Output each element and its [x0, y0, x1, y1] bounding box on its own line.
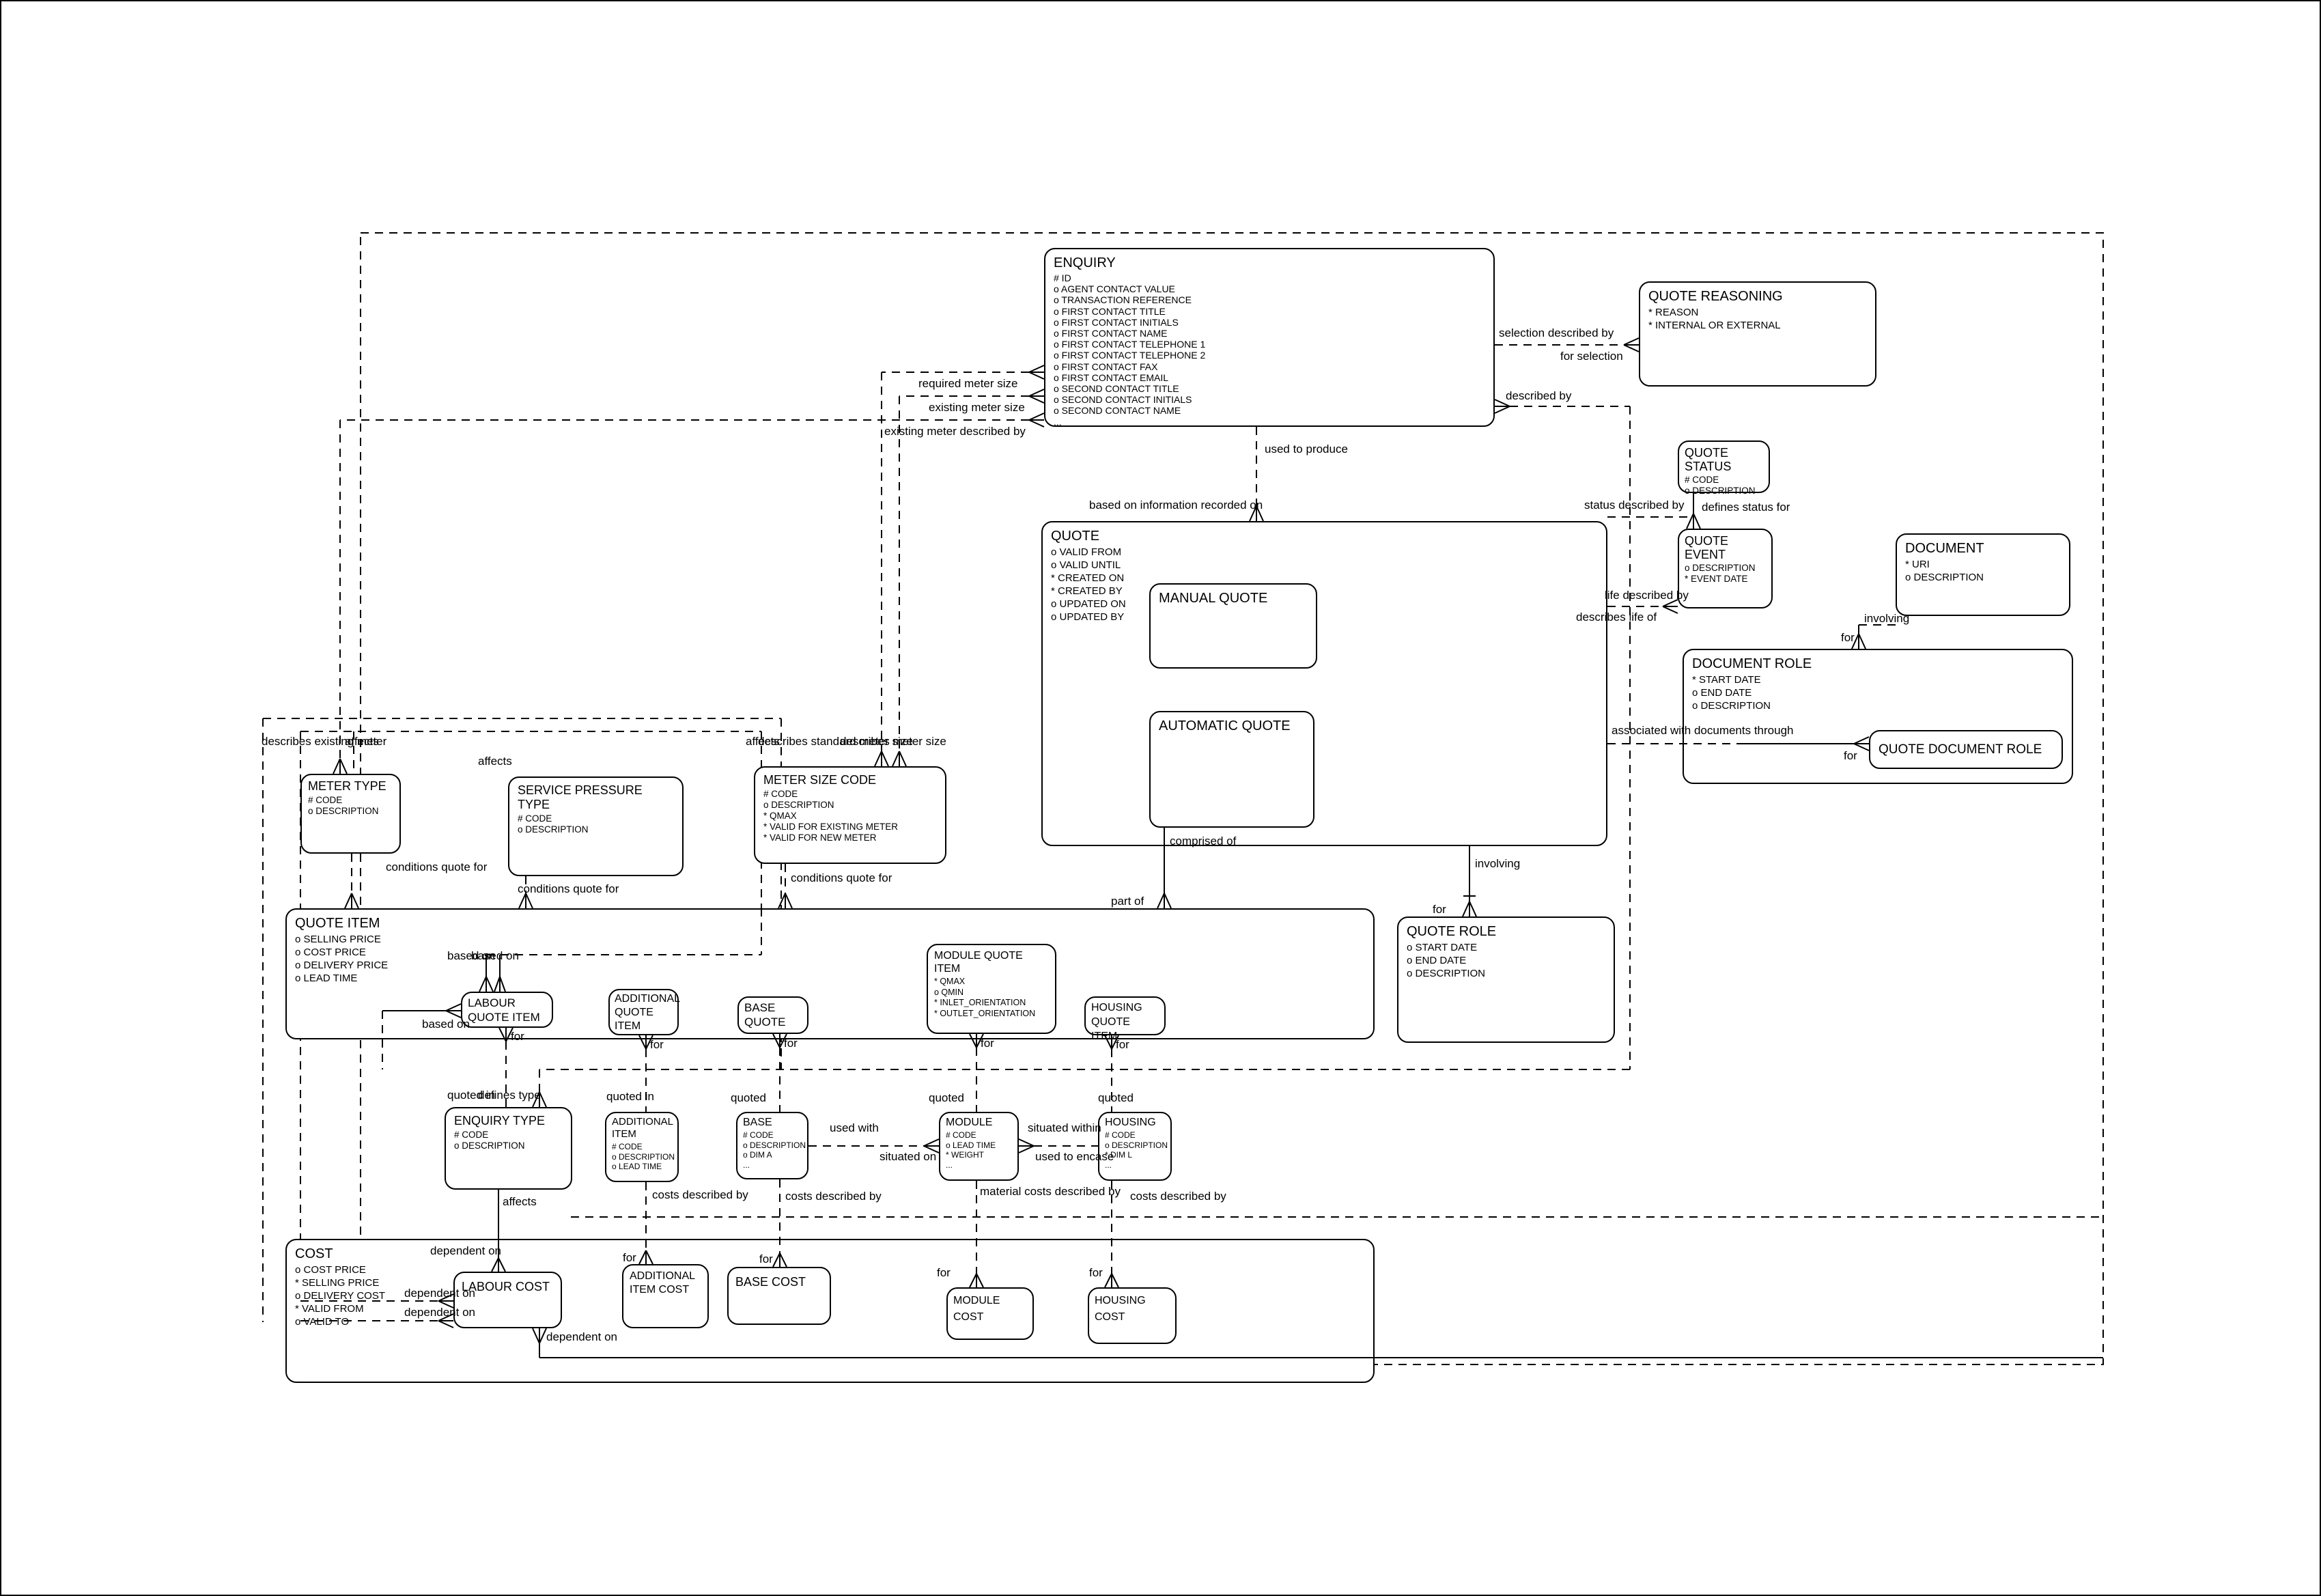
entity-document-title: DOCUMENT — [1905, 540, 2061, 557]
rel-label-required-meter-size: required meter size — [918, 377, 1018, 390]
attribute-row: * URI — [1905, 558, 2061, 571]
entity-quote-role: QUOTE ROLE o START DATE o END DATE o DES… — [1397, 916, 1615, 1043]
entity-base-title: BASE — [743, 1116, 802, 1129]
attribute-row: # ID — [1054, 272, 1485, 283]
attribute-row: o LEAD TIME — [612, 1162, 672, 1172]
attribute-row: * EVENT DATE — [1685, 574, 1766, 585]
attribute-row: * QMAX — [763, 811, 937, 822]
rel-label-dependent-on-top: dependent on — [430, 1244, 501, 1257]
rel-label-involving-quote-role: involving — [1475, 857, 1520, 870]
rel-label-quoted-housing: quoted — [1098, 1091, 1134, 1104]
attribute-row: o SECOND CONTACT NAME — [1054, 405, 1485, 416]
rel-label-for-housing-cost: for — [1089, 1266, 1103, 1279]
rel-label-selection-described-by: selection described by — [1499, 326, 1614, 339]
entity-quote-event-title: QUOTE EVENT — [1685, 534, 1766, 561]
entity-quote-document-role: QUOTE DOCUMENT ROLE — [1869, 730, 2063, 769]
attribute-row: # CODE — [518, 813, 674, 824]
rel-label-for-additional-cost: for — [623, 1251, 636, 1264]
rel-label-costs-described-by-additional: costs described by — [652, 1188, 748, 1201]
entity-service-pressure-type-attrs: # CODE o DESCRIPTION — [518, 813, 674, 835]
entity-labour-cost-title: LABOUR COST — [462, 1278, 554, 1295]
rel-label-costs-described-by-base: costs described by — [785, 1190, 882, 1203]
rel-label-quoted-in-additional: quoted in — [606, 1090, 654, 1103]
entity-additional-quote-item-title: ADDITIONAL QUOTE ITEM — [615, 992, 673, 1033]
entity-housing-title: HOUSING — [1105, 1116, 1165, 1129]
rel-label-quoted-module: quoted — [929, 1091, 964, 1104]
attribute-row: o DESCRIPTION — [1685, 563, 1766, 574]
rel-label-conditions-quote-for-meter-type: conditions quote for — [386, 860, 487, 873]
attribute-row: o DESCRIPTION — [1105, 1140, 1165, 1151]
entity-additional-item-attrs: # CODE o DESCRIPTION o LEAD TIME — [612, 1142, 672, 1172]
entity-manual-quote: MANUAL QUOTE — [1149, 583, 1317, 669]
rel-label-part-of: part of — [1111, 895, 1144, 908]
rel-label-involving-document: involving — [1864, 612, 1909, 625]
attribute-row: o FIRST CONTACT NAME — [1054, 328, 1485, 339]
attribute-row: # CODE — [454, 1130, 563, 1140]
entity-quote-reasoning: QUOTE REASONING * REASON * INTERNAL OR E… — [1639, 281, 1876, 387]
attribute-row: o END DATE — [1407, 954, 1605, 967]
entity-labour-quote-item: LABOUR QUOTE ITEM — [461, 992, 553, 1028]
attribute-row: o FIRST CONTACT TELEPHONE 1 — [1054, 339, 1485, 350]
rel-label-for-additional-quote-item: for — [650, 1038, 664, 1051]
entity-service-pressure-type: SERVICE PRESSURE TYPE # CODE o DESCRIPTI… — [508, 776, 684, 876]
rel-label-for-module-quote-item: for — [981, 1037, 994, 1050]
attribute-row: * VALID FOR EXISTING METER — [763, 822, 937, 832]
entity-module-attrs: # CODE o LEAD TIME * WEIGHT ... — [946, 1130, 1012, 1170]
entity-enquiry-attrs: # ID o AGENT CONTACT VALUE o TRANSACTION… — [1054, 272, 1485, 428]
attribute-row: o SECOND CONTACT INITIALS — [1054, 394, 1485, 405]
attribute-row: # CODE — [763, 789, 937, 800]
entity-labour-cost: LABOUR COST — [453, 1272, 562, 1328]
entity-quote-reasoning-attrs: * REASON * INTERNAL OR EXTERNAL — [1648, 306, 1867, 332]
attribute-row: o START DATE — [1407, 941, 1605, 954]
attribute-row: * REASON — [1648, 306, 1867, 319]
entity-base: BASE # CODE o DESCRIPTION o DIM A ... — [736, 1112, 808, 1179]
entity-base-cost-title: BASE COST — [735, 1274, 823, 1290]
rel-label-based-on-left: based on — [422, 1018, 470, 1031]
entity-enquiry-title: ENQUIRY — [1054, 255, 1485, 271]
entity-base-quote: BASE QUOTE — [737, 996, 808, 1034]
entity-module-cost-title: MODULE COST — [953, 1293, 1027, 1326]
entity-additional-quote-item: ADDITIONAL QUOTE ITEM — [608, 989, 679, 1035]
rel-label-material-costs-described-by: material costs described by — [980, 1185, 1121, 1198]
entity-meter-type-title: METER TYPE — [308, 779, 393, 794]
entity-additional-item-cost: ADDITIONAL ITEM COST — [622, 1264, 709, 1328]
rel-label-describes-meter-size: describes meter size — [840, 735, 946, 748]
entity-base-cost: BASE COST — [727, 1267, 831, 1325]
entity-module-quote-item-title: MODULE QUOTE ITEM — [934, 949, 1049, 975]
rel-label-existing-meter-size: existing meter size — [929, 401, 1025, 414]
attribute-row: o LEAD TIME — [946, 1140, 1012, 1151]
attribute-row: # CODE — [946, 1130, 1012, 1140]
attribute-row: o AGENT CONTACT VALUE — [1054, 283, 1485, 294]
entity-enquiry-type-title: ENQUIRY TYPE — [454, 1114, 563, 1128]
entity-module-quote-item-attrs: * QMAX o QMIN * INLET_ORIENTATION * OUTL… — [934, 977, 1049, 1019]
rel-label-status-described-by: status described by — [1584, 499, 1684, 512]
entity-additional-item-title: ADDITIONAL ITEM — [612, 1116, 672, 1140]
entity-quote-status: QUOTE STATUS # CODE o DESCRIPTION — [1678, 440, 1770, 493]
attribute-row: ... — [1054, 417, 1485, 428]
entity-enquiry-type: ENQUIRY TYPE # CODE o DESCRIPTION — [445, 1107, 572, 1190]
attribute-row: * INLET_ORIENTATION — [934, 998, 1049, 1009]
attribute-row: o FIRST CONTACT TITLE — [1054, 306, 1485, 317]
attribute-row: o DIM A — [743, 1150, 802, 1160]
rel-label-for-selection: for selection — [1560, 350, 1623, 363]
attribute-row: o TRANSACTION REFERENCE — [1054, 294, 1485, 305]
rel-label-costs-described-by-housing: costs described by — [1130, 1190, 1226, 1203]
entity-module-cost: MODULE COST — [946, 1287, 1034, 1340]
attribute-row: # CODE — [743, 1130, 802, 1140]
rel-label-dependent-on-valid: dependent on — [404, 1306, 475, 1319]
entity-quote-status-title: QUOTE STATUS — [1685, 446, 1763, 473]
rel-label-described-by: described by — [1506, 389, 1571, 402]
entity-document-attrs: * URI o DESCRIPTION — [1905, 558, 2061, 584]
attribute-row: * INTERNAL OR EXTERNAL — [1648, 319, 1867, 332]
attribute-row: o FIRST CONTACT FAX — [1054, 361, 1485, 372]
attribute-row: o DESCRIPTION — [612, 1152, 672, 1162]
entity-meter-size-code-title: METER SIZE CODE — [763, 773, 937, 787]
attribute-row: o FIRST CONTACT EMAIL — [1054, 372, 1485, 383]
entity-service-pressure-type-title: SERVICE PRESSURE TYPE — [518, 783, 674, 812]
entity-labour-quote-item-title: LABOUR QUOTE ITEM — [468, 996, 546, 1024]
attribute-row: * VALID FOR NEW METER — [763, 832, 937, 843]
attribute-row: o FIRST CONTACT TELEPHONE 2 — [1054, 350, 1485, 361]
rel-label-for-labour-quote-item: for — [511, 1030, 524, 1043]
attribute-row: o DESCRIPTION — [1905, 571, 2061, 584]
rel-label-affects-meter-type: affects — [345, 735, 379, 748]
rel-label-based-on-2: based on — [471, 949, 519, 962]
rel-label-conditions-quote-for-service-pressure: conditions quote for — [518, 882, 619, 895]
attribute-row: * WEIGHT — [946, 1150, 1012, 1160]
entity-quote-event: QUOTE EVENT o DESCRIPTION * EVENT DATE — [1678, 529, 1773, 608]
rel-label-for-module-cost: for — [937, 1266, 951, 1279]
rel-label-used-to-encase: used to encase — [1035, 1150, 1114, 1163]
rel-label-situated-on: situated on — [880, 1150, 936, 1163]
attribute-row: # CODE — [1105, 1130, 1165, 1140]
rel-label-used-to-produce: used to produce — [1265, 443, 1348, 456]
entity-meter-size-code: METER SIZE CODE # CODE o DESCRIPTION * Q… — [754, 766, 946, 864]
entity-meter-type-attrs: # CODE o DESCRIPTION — [308, 795, 393, 817]
entity-module-quote-item: MODULE QUOTE ITEM * QMAX o QMIN * INLET_… — [927, 944, 1056, 1034]
rel-label-affects-service-pressure: affects — [478, 755, 512, 768]
entity-additional-item: ADDITIONAL ITEM # CODE o DESCRIPTION o L… — [605, 1112, 679, 1182]
rel-label-situated-within: situated within — [1028, 1121, 1101, 1134]
entity-quote-event-attrs: o DESCRIPTION * EVENT DATE — [1685, 563, 1766, 585]
rel-label-for-document: for — [1841, 631, 1855, 644]
rel-label-dependent-on-selling: dependent on — [404, 1287, 475, 1300]
rel-label-conditions-quote-for-meter-size: conditions quote for — [791, 871, 892, 884]
attribute-row: # CODE — [612, 1142, 672, 1152]
rel-label-for-quote-role: for — [1433, 903, 1446, 916]
rel-label-associated-with-documents-through: associated with documents through — [1612, 724, 1794, 737]
attribute-row: o DESCRIPTION — [763, 800, 937, 811]
rel-label-quoted-base: quoted — [731, 1091, 766, 1104]
rel-label-for-base-quote: for — [784, 1037, 798, 1050]
attribute-row: o DESCRIPTION — [743, 1140, 802, 1151]
attribute-row: ... — [946, 1160, 1012, 1171]
attribute-row: o DESCRIPTION — [1685, 486, 1763, 496]
rel-label-based-on-information-recorded-on: based on information recorded on — [1089, 499, 1263, 512]
entity-document: DOCUMENT * URI o DESCRIPTION — [1896, 533, 2070, 616]
entity-automatic-quote-title: AUTOMATIC QUOTE — [1159, 718, 1305, 734]
rel-label-defines-type: defines type — [478, 1089, 541, 1102]
rel-label-affects-enquiry-type: affects — [503, 1195, 537, 1208]
attribute-row: o DESCRIPTION — [308, 806, 393, 817]
entity-housing-cost-title: HOUSING COST — [1095, 1293, 1170, 1326]
entity-housing-quote-item: HOUSING QUOTE ITEM — [1084, 996, 1166, 1035]
entity-quote-role-attrs: o START DATE o END DATE o DESCRIPTION — [1407, 941, 1605, 980]
entity-meter-type: METER TYPE # CODE o DESCRIPTION — [300, 774, 401, 854]
attribute-row: o DESCRIPTION — [1407, 967, 1605, 980]
rel-label-comprised-of: comprised of — [1170, 835, 1236, 848]
entity-housing-cost: HOUSING COST — [1088, 1287, 1177, 1344]
rel-label-describes-life-of: describes life of — [1576, 611, 1657, 624]
entity-quote-document-role-title: QUOTE DOCUMENT ROLE — [1879, 742, 2042, 758]
attribute-row: o DESCRIPTION — [518, 824, 674, 835]
rel-label-for-base-cost: for — [759, 1252, 773, 1265]
attribute-row: o QMIN — [934, 988, 1049, 998]
rel-label-existing-meter-described-by: existing meter described by — [884, 425, 1026, 438]
attribute-row: # CODE — [1685, 475, 1763, 486]
entity-base-quote-title: BASE QUOTE — [744, 1000, 802, 1029]
attribute-row: * OUTLET_ORIENTATION — [934, 1009, 1049, 1020]
rel-label-for-quote-document-role: for — [1844, 749, 1857, 762]
entity-module-title: MODULE — [946, 1116, 1012, 1129]
entity-quote-role-title: QUOTE ROLE — [1407, 923, 1605, 940]
entity-meter-size-code-attrs: # CODE o DESCRIPTION * QMAX * VALID FOR … — [763, 789, 937, 843]
attribute-row: # CODE — [308, 795, 393, 806]
entity-additional-item-cost-title: ADDITIONAL ITEM COST — [630, 1270, 701, 1297]
rel-label-dependent-on-bottom: dependent on — [546, 1330, 617, 1343]
attribute-row: ... — [743, 1160, 802, 1171]
attribute-row: o DESCRIPTION — [454, 1140, 563, 1151]
rel-label-defines-status-for: defines status for — [1702, 501, 1790, 514]
rel-label-for-housing-quote-item: for — [1116, 1038, 1129, 1051]
rel-label-life-described-by: life described by — [1605, 589, 1689, 602]
rel-label-used-with: used with — [830, 1121, 879, 1134]
entity-enquiry: ENQUIRY # ID o AGENT CONTACT VALUE o TRA… — [1044, 248, 1495, 427]
entity-automatic-quote: AUTOMATIC QUOTE — [1149, 711, 1314, 828]
entity-housing: HOUSING # CODE o DESCRIPTION * DIM L ... — [1098, 1112, 1172, 1181]
entity-base-attrs: # CODE o DESCRIPTION o DIM A ... — [743, 1130, 802, 1170]
entity-enquiry-type-attrs: # CODE o DESCRIPTION — [454, 1130, 563, 1151]
attribute-row: o SECOND CONTACT TITLE — [1054, 383, 1485, 394]
entity-module: MODULE # CODE o LEAD TIME * WEIGHT ... — [939, 1112, 1019, 1181]
attribute-row: * QMAX — [934, 977, 1049, 988]
entity-housing-quote-item-title: HOUSING QUOTE ITEM — [1091, 1000, 1159, 1044]
entity-manual-quote-title: MANUAL QUOTE — [1159, 590, 1308, 606]
attribute-row: o FIRST CONTACT INITIALS — [1054, 317, 1485, 328]
entity-quote-status-attrs: # CODE o DESCRIPTION — [1685, 475, 1763, 496]
entity-quote-reasoning-title: QUOTE REASONING — [1648, 288, 1867, 305]
